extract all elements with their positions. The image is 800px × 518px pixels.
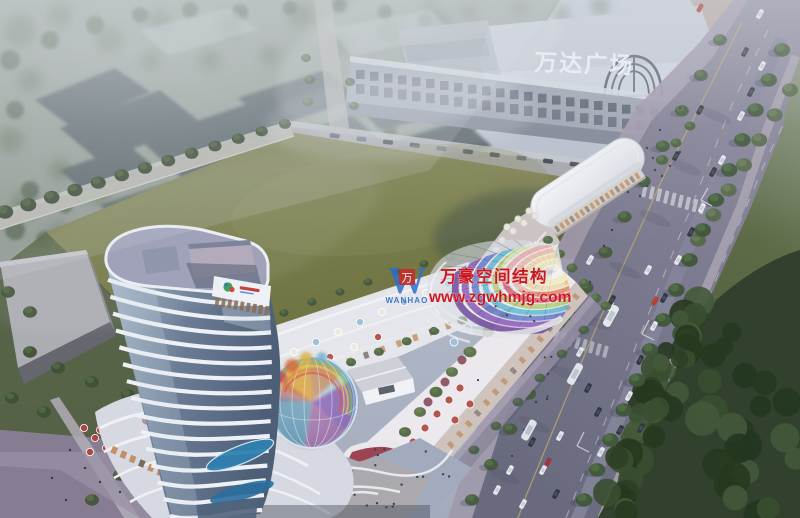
svg-text:万豪空间结构: 万豪空间结构: [439, 266, 548, 286]
svg-text:WANHAO: WANHAO: [385, 296, 428, 305]
svg-text:万: 万: [402, 273, 413, 285]
svg-text:www.zgwhmjg.com: www.zgwhmjg.com: [428, 289, 571, 306]
